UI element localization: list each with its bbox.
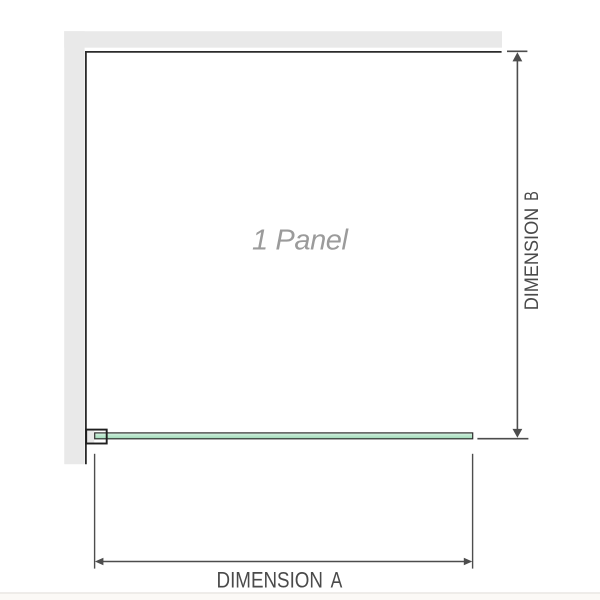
svg-text:DIMENSION: DIMENSION — [521, 208, 543, 311]
svg-text:A: A — [331, 567, 343, 592]
svg-text:1 Panel: 1 Panel — [252, 224, 350, 256]
svg-text:DIMENSION: DIMENSION — [217, 567, 324, 592]
svg-text:B: B — [521, 191, 543, 201]
